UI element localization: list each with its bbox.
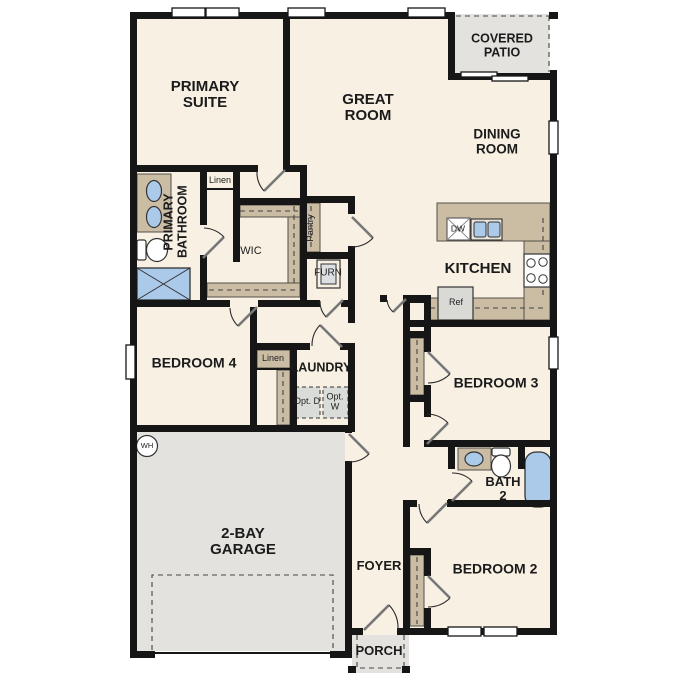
window [288,8,325,17]
label-bedroom-4: BEDROOM 4 [134,355,254,370]
label-furnace: FURN [314,269,342,280]
label-opt-dryer: Opt. D [294,397,320,407]
window [408,8,445,17]
label-pantry: Pantry [306,214,316,241]
label-bedroom-3: BEDROOM 3 [436,375,556,390]
window [484,627,517,636]
floor-plan: PRIMARY SUITE GREAT ROOM COVERED PATIO D… [0,0,687,687]
label-foyer: FOYER [349,559,409,573]
sliding-door [492,76,528,81]
label-great-room: GREAT ROOM [333,92,403,124]
label-water-heater: WH [141,442,154,450]
window [172,8,205,17]
label-garage: 2-BAY GARAGE [198,526,288,558]
sink-icon [147,207,162,228]
bedroom4-closet-shelf [277,370,290,425]
label-laundry: LAUNDRY [281,361,361,375]
label-primary-suite: PRIMARY SUITE [155,79,255,111]
label-covered-patio: COVERED PATIO [462,33,542,60]
label-dishwasher: DW [451,224,465,233]
window [549,121,558,154]
bathtub-icon [525,452,551,507]
window [549,337,558,369]
label-bath-2: BATH 2 [481,475,525,503]
label-dining-room: DINING ROOM [466,127,528,156]
sink-icon [147,181,162,202]
sink-icon [465,452,483,466]
label-bedroom-2: BEDROOM 2 [435,561,555,576]
window [206,8,239,17]
label-opt-washer: Opt. W [322,392,348,411]
label-linen-1: Linen [209,176,231,186]
label-primary-bathroom: PRIMARY BATHROOM [163,186,190,258]
toilet-icon [492,448,511,477]
shower-icon [137,268,190,300]
label-refrigerator: Ref [449,298,463,308]
window [448,627,481,636]
label-wic: WIC [240,246,261,258]
label-kitchen: KITCHEN [418,261,538,277]
label-porch: PORCH [349,644,409,658]
kitchen-sink-icon [471,219,502,240]
